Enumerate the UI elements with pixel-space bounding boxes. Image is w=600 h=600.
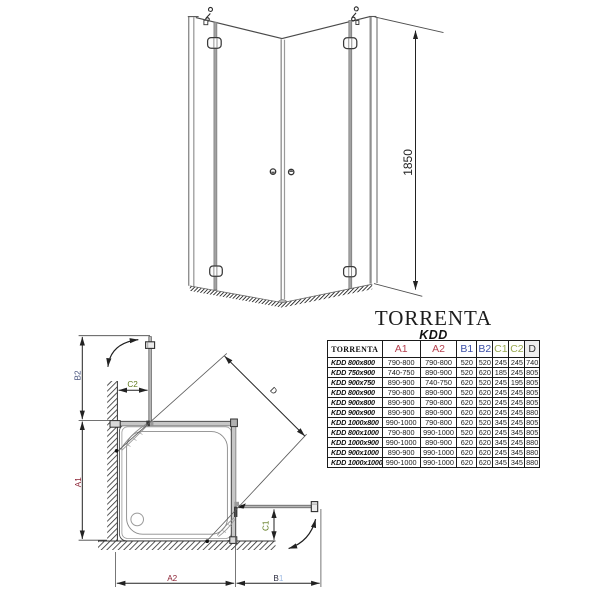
svg-text:B1: B1: [273, 574, 283, 583]
svg-text:C2: C2: [127, 380, 138, 389]
svg-text:C1: C1: [261, 520, 270, 531]
svg-text:D: D: [268, 385, 279, 396]
svg-text:B2: B2: [74, 370, 83, 380]
svg-text:1850: 1850: [401, 149, 415, 176]
svg-text:A2: A2: [167, 574, 177, 583]
svg-text:A1: A1: [74, 477, 83, 487]
